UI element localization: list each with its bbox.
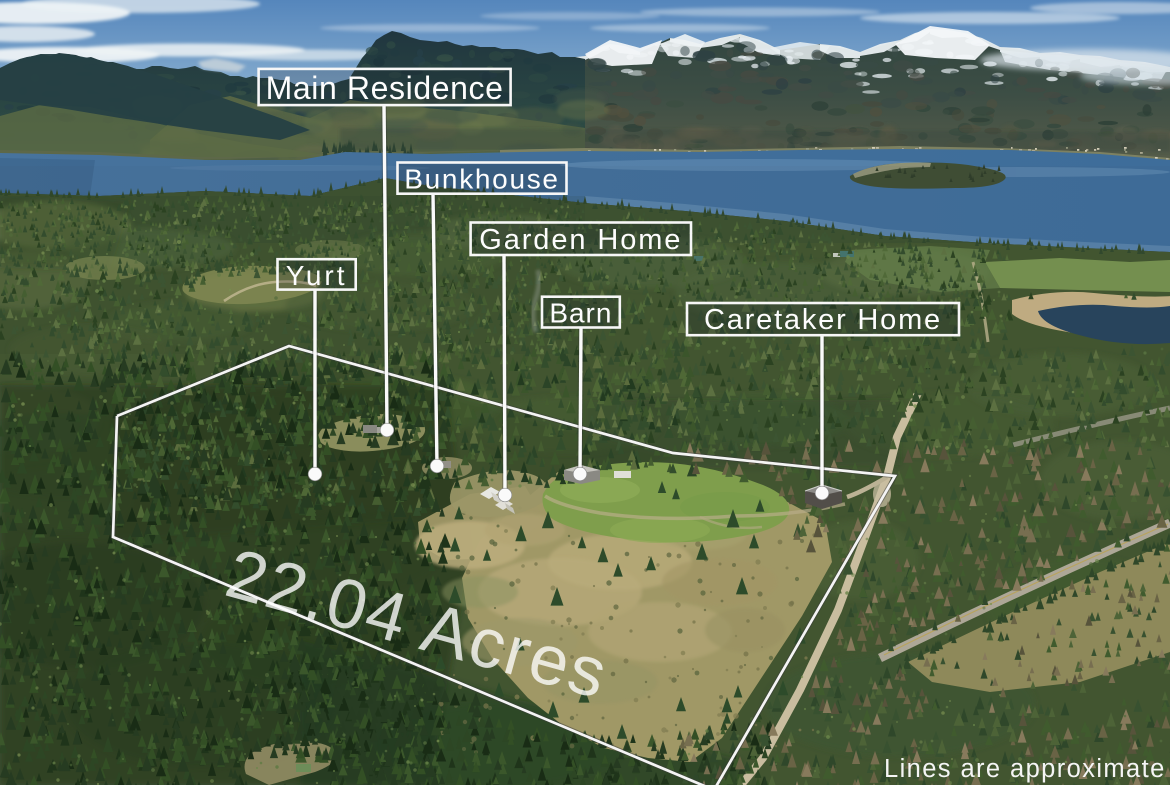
svg-text:Main Residence: Main Residence [266,70,504,106]
svg-text:Bunkhouse: Bunkhouse [404,164,559,195]
svg-text:Lines are approximate: Lines are approximate [884,755,1166,783]
svg-text:Yurt: Yurt [286,260,348,291]
svg-text:Garden Home: Garden Home [479,224,682,256]
svg-text:Caretaker Home: Caretaker Home [704,304,942,336]
svg-text:Barn: Barn [549,298,612,329]
